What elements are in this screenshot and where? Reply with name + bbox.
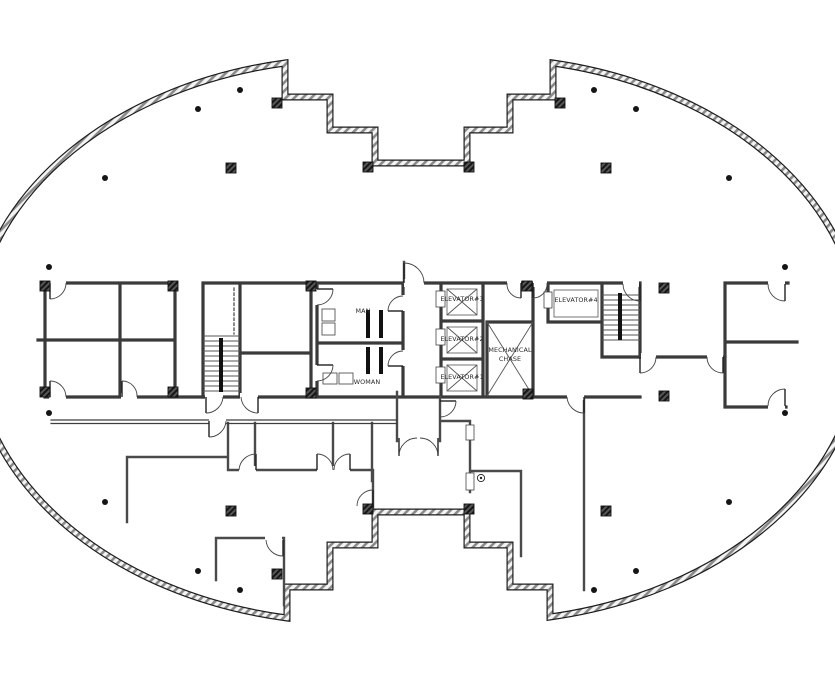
mens-restroom-fixtures: [322, 309, 383, 338]
mechanical-chase-label-line1: MECHANICAL: [488, 346, 532, 354]
mens-restroom-label: MAN: [356, 307, 371, 315]
stair-west: [203, 288, 240, 392]
floor-plan-canvas: MAN WOMAN ELEVATOR#3 ELEVATOR#2 ELEVATOR…: [0, 0, 835, 678]
elevator-2-label: ELEVATOR#2: [440, 335, 483, 343]
mechanical-chase-label-line2: CHASE: [499, 355, 521, 363]
elevator-1-label: ELEVATOR#1: [440, 373, 483, 381]
elevator-4-label: ELEVATOR#4: [554, 296, 597, 304]
west-rooms-walls: [38, 283, 203, 397]
elevator-3-label: ELEVATOR#3: [440, 295, 483, 303]
door-openings: [49, 279, 785, 542]
floor-drain-icon: [477, 474, 484, 481]
east-rooms-walls: [640, 283, 797, 407]
floor-plan-page: MAN WOMAN ELEVATOR#3 ELEVATOR#2 ELEVATOR…: [0, 0, 835, 678]
core-walls: [38, 283, 797, 407]
room-labels: MAN WOMAN ELEVATOR#3 ELEVATOR#2 ELEVATOR…: [354, 295, 598, 386]
womens-restroom-label: WOMAN: [354, 378, 381, 386]
